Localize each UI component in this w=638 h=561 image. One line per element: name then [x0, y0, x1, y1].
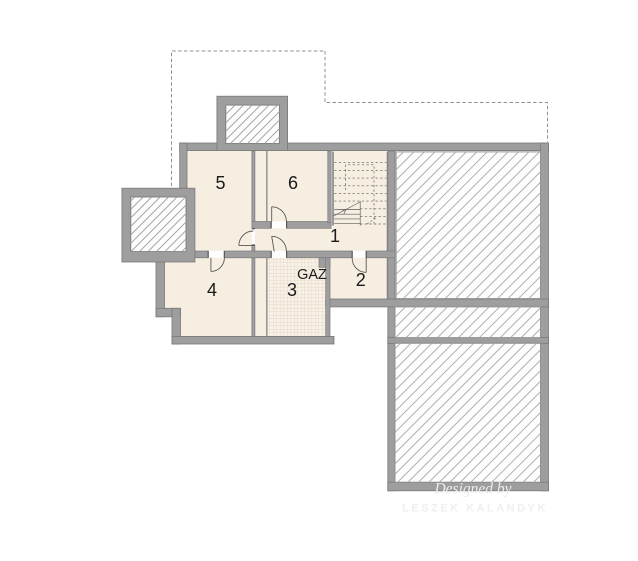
svg-text:2: 2	[356, 270, 366, 290]
svg-text:1: 1	[330, 226, 340, 246]
svg-text:GAZ: GAZ	[297, 267, 327, 283]
svg-text:6: 6	[288, 173, 298, 193]
svg-text:3: 3	[287, 280, 297, 300]
svg-text:Designed by: Designed by	[433, 481, 511, 498]
svg-text:5: 5	[215, 173, 225, 193]
svg-text:4: 4	[207, 280, 217, 300]
svg-text:LESZEK KALANDYK: LESZEK KALANDYK	[402, 503, 548, 515]
